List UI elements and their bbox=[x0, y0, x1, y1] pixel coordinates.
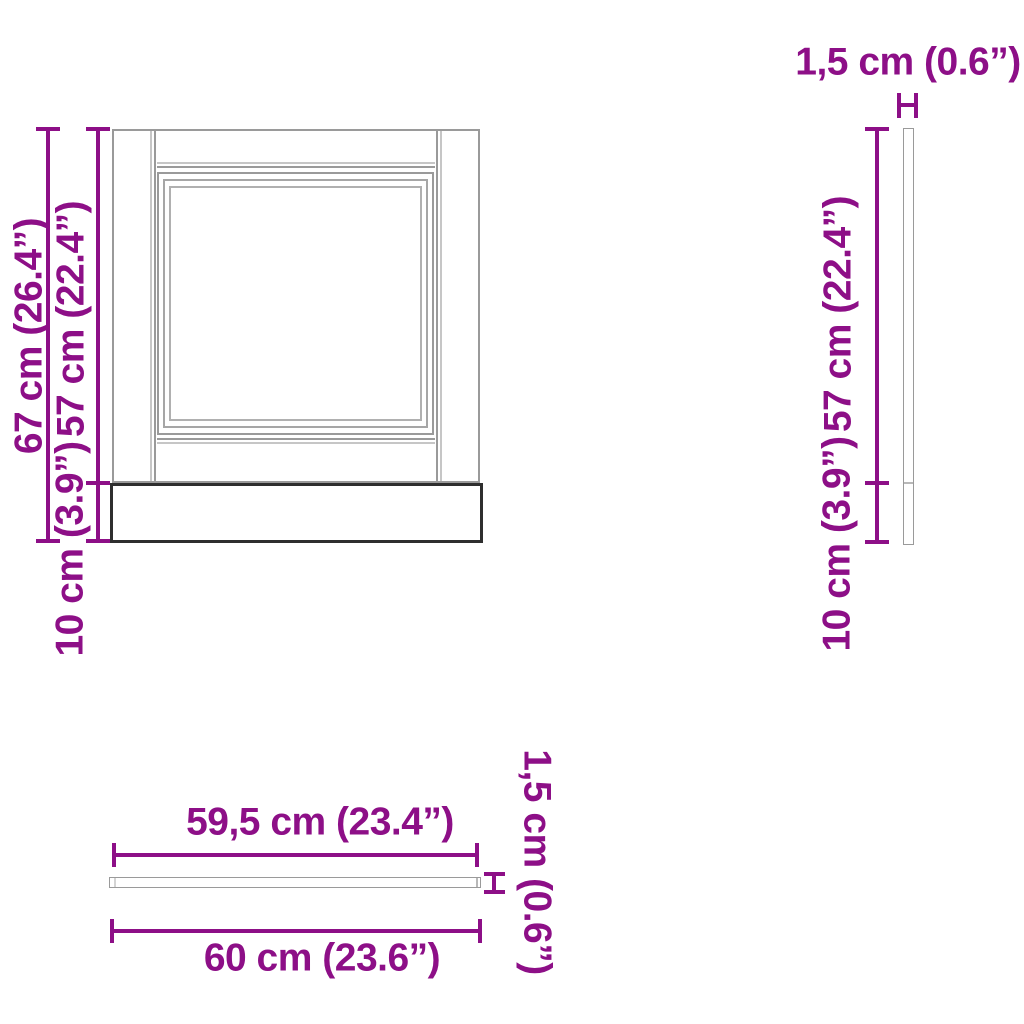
label-top-inner-length: 59,5 cm (23.4”) bbox=[186, 803, 454, 842]
dim-tick bbox=[36, 127, 60, 131]
front-stile-line bbox=[150, 131, 152, 481]
label-top-total-length: 60 cm (23.6”) bbox=[204, 939, 440, 978]
front-stile-line bbox=[154, 131, 156, 481]
front-plinth-outline bbox=[110, 483, 483, 543]
dim-tick bbox=[112, 843, 116, 867]
front-rail-line bbox=[157, 438, 435, 440]
label-side-door-height: 57 cm (22.4”) bbox=[819, 196, 858, 432]
dim-tick bbox=[86, 127, 110, 131]
label-side-thickness: 1,5 cm (0.6”) bbox=[795, 43, 1020, 82]
label-side-plinth-height: 10 cm (3.9”) bbox=[818, 436, 857, 651]
label-front-door-height: 57 cm (22.4”) bbox=[52, 201, 91, 437]
dimension-diagram: 67 cm (26.4”) 57 cm (22.4”) 10 cm (3.9”)… bbox=[0, 0, 1024, 1024]
front-stile-line bbox=[440, 131, 442, 481]
top-panel-seam bbox=[476, 878, 478, 887]
top-panel-outline bbox=[109, 877, 481, 888]
label-front-plinth-height: 10 cm (3.9”) bbox=[51, 441, 90, 656]
dim-tick bbox=[865, 481, 889, 485]
label-top-thickness: 1,5 cm (0.6”) bbox=[518, 749, 557, 974]
dim-tick bbox=[865, 540, 889, 544]
dim-line-top-inner-length bbox=[114, 853, 478, 857]
front-stile-line bbox=[436, 131, 438, 481]
dim-tick bbox=[865, 127, 889, 131]
dim-line-top-total-length bbox=[112, 929, 482, 933]
label-front-total-height: 67 cm (26.4”) bbox=[10, 218, 49, 454]
front-rail-line bbox=[157, 162, 435, 164]
top-panel-seam bbox=[114, 878, 116, 887]
front-rail-line bbox=[157, 442, 435, 444]
front-center-panel-bevel-inner bbox=[169, 186, 422, 421]
dim-tick bbox=[110, 919, 114, 943]
side-panel-seam bbox=[904, 482, 913, 484]
dim-tick bbox=[475, 843, 479, 867]
front-rail-line bbox=[157, 166, 435, 168]
dim-tick bbox=[478, 919, 482, 943]
